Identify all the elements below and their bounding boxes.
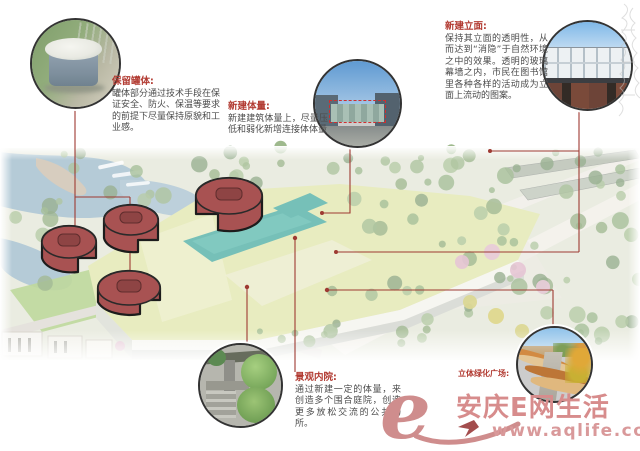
photo-content: [237, 387, 275, 423]
photo-content: [45, 38, 102, 60]
watermark-site-name: 安庆E网生活: [456, 387, 610, 424]
photo-existing-tank-circle: [30, 18, 121, 109]
page: 保留罐体: 罐体部分通过技术手段在保证安全、防火、保温等要求的前提下尽量保持原貌…: [0, 0, 640, 451]
photo-content: [206, 391, 237, 418]
photo-content: [207, 349, 226, 366]
callout-new-volume: 新建体量: 新建建筑体量上，尽量压低和弱化新增连接体体量: [228, 101, 328, 137]
photo-content: [241, 354, 277, 390]
callout-body: 罐体部分通过技术手段在保证安全、防火、保温等要求的前提下尽量保持原貌和工业感。: [112, 89, 220, 135]
watermark-site-url: www.aqlife.com: [492, 421, 640, 441]
callout-title: 新建体量:: [228, 101, 328, 113]
photo-courtyard-plan-circle: [198, 343, 283, 428]
photo-content: [206, 381, 248, 390]
callout-title: 保留罐体:: [112, 76, 220, 88]
callout-new-facade: 新建立面: 保持其立面的透明性，从而达到“消隐”于自然环境之中的效果。透明的玻璃…: [445, 21, 548, 103]
callout-title: 新建立面:: [445, 21, 548, 33]
faint-sketch-fragment: [618, 0, 640, 130]
callout-retain-tanks: 保留罐体: 罐体部分通过技术手段在保证安全、防火、保温等要求的前提下尽量保持原貌…: [112, 76, 220, 135]
highlight-dashed-box: [329, 100, 387, 123]
callout-body: 新建建筑体量上，尽量压低和弱化新增连接体体量: [228, 114, 328, 137]
photo-content: [565, 348, 593, 383]
callout-body: 保持其立面的透明性，从而达到“消隐”于自然环境之中的效果。透明的玻璃幕墙之内，市…: [445, 34, 548, 103]
watermark: e 安庆E网生活 www.aqlife.com: [378, 382, 640, 451]
